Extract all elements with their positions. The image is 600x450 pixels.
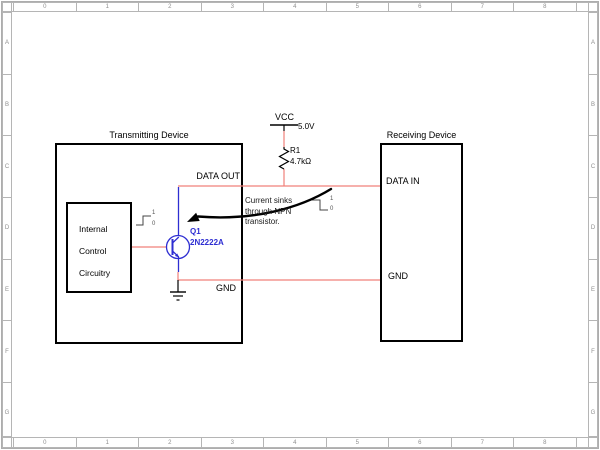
vcc-net-label: VCC (264, 112, 305, 122)
gnd-net-label: GND (176, 283, 236, 293)
transistor-ref: Q1 (190, 227, 201, 236)
logic-high-label: 1 (152, 210, 155, 216)
internal-block-text-line: Control (79, 246, 106, 256)
schematic-sheet: 012345678 012345678 ABCDEFG ABCDEFG (0, 0, 600, 450)
resistor-symbol (280, 147, 289, 169)
logic-low-label: 0 (152, 221, 155, 227)
falling-edge-icon (312, 200, 328, 210)
transistor-part-number: 2N2222A (190, 238, 224, 247)
data-out-net-label: DATA OUT (178, 171, 240, 181)
gnd-pin-label: GND (388, 271, 408, 281)
annotation-line: Current sinks (245, 196, 292, 207)
internal-block-text-line: Internal (79, 224, 107, 234)
npn-transistor-symbol (167, 187, 190, 272)
logic-low-label: 0 (330, 206, 333, 212)
gnd-net-wire (178, 272, 380, 280)
data-in-pin-label: DATA IN (386, 176, 420, 186)
receiving-device-title: Receiving Device (380, 130, 463, 140)
internal-block-text-line: Circuitry (79, 268, 110, 278)
current-sink-annotation: Current sinks through NPN transistor. (245, 196, 292, 228)
resistor-ref: R1 (290, 146, 300, 155)
rising-edge-icon (136, 216, 151, 225)
resistor-value: 4.7kΩ (290, 157, 311, 166)
annotation-line: through NPN (245, 207, 292, 218)
vcc-symbol (270, 125, 298, 131)
logic-high-label: 1 (330, 196, 333, 202)
vcc-voltage-value: 5.0V (298, 122, 314, 131)
transmitting-device-title: Transmitting Device (55, 130, 243, 140)
annotation-line: transistor. (245, 217, 292, 228)
